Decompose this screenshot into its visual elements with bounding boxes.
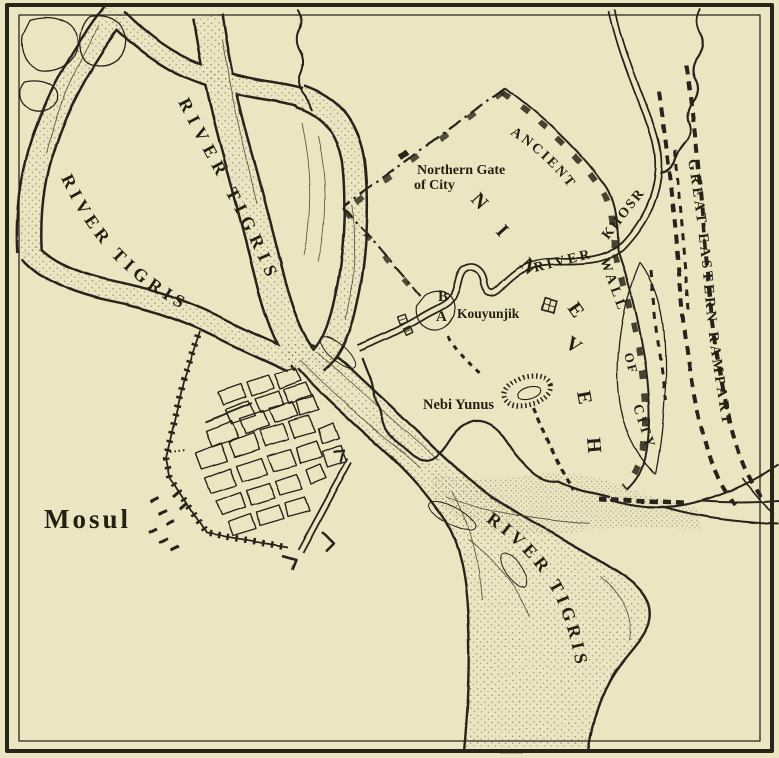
label-mound-b: B xyxy=(438,289,448,305)
svg-text:H: H xyxy=(582,437,605,455)
label-nebi-yunus: Nebi Yunus xyxy=(423,397,494,413)
label-northern-gate-line1: Northern Gate xyxy=(417,163,505,178)
antique-map-nineveh-mosul: RIVER TIGRIS RIVER TIGRIS RIVER TIGRIS A… xyxy=(0,0,779,758)
label-kouyunjik: Kouyunjik xyxy=(457,306,520,321)
label-northern-gate-line2: of City xyxy=(414,178,455,193)
map-canvas: RIVER TIGRIS RIVER TIGRIS RIVER TIGRIS A… xyxy=(0,0,779,758)
label-mosul: Mosul xyxy=(44,504,131,534)
label-mound-a: A xyxy=(436,309,447,325)
